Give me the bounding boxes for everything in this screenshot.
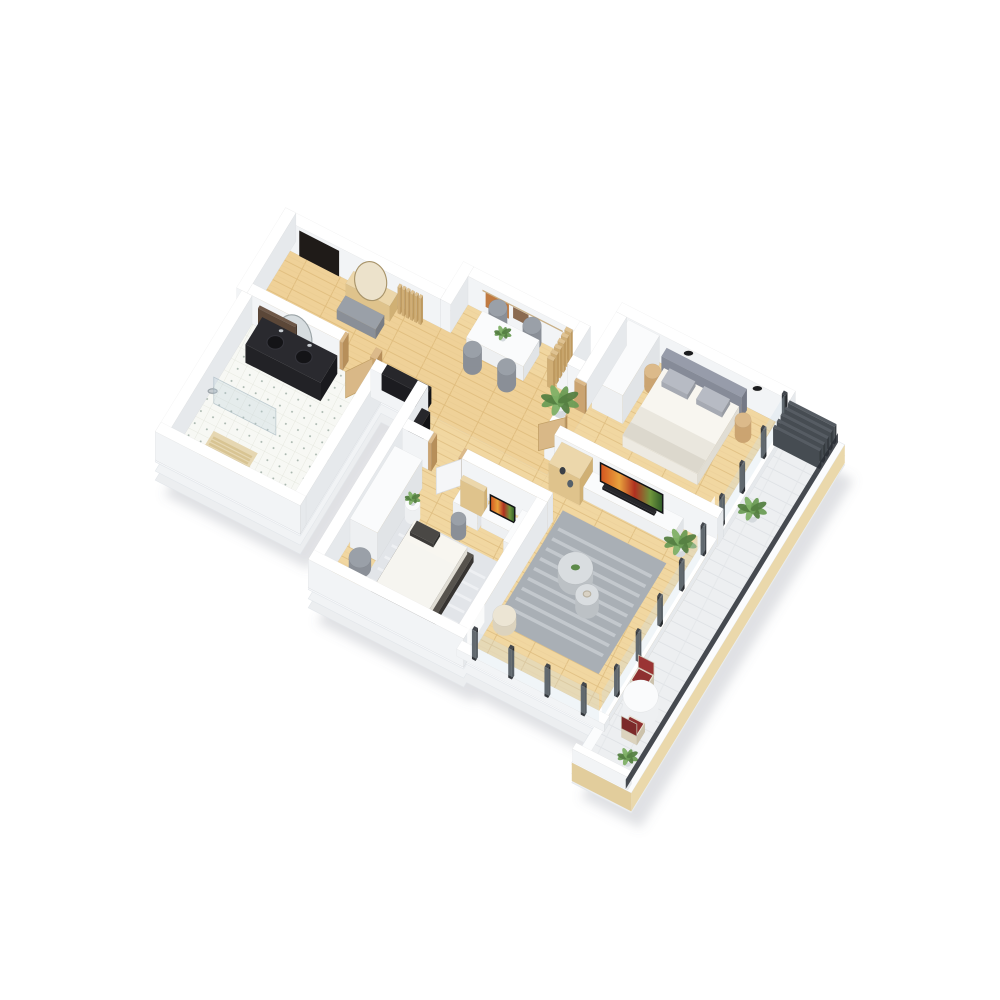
bedroom2-beanbag (349, 547, 371, 568)
entry-slat-panel-5-face (414, 295, 417, 323)
bath-sink-bowl-1 (267, 336, 284, 350)
balcony-round-table (623, 680, 658, 712)
scene-root (155, 208, 854, 829)
slat-divider-5-face (557, 352, 559, 384)
slat-divider-6-face (547, 358, 553, 390)
entry-slat-panel-4-face (410, 293, 413, 321)
master-door-frame-1-face (585, 383, 587, 414)
slat-divider-4-face (560, 347, 562, 379)
master-nightstand-left (644, 364, 660, 379)
entry-slat-panel-1-face (398, 287, 401, 315)
dining-chair-front-2 (497, 358, 516, 375)
bath-door-frame-1-face (340, 341, 343, 370)
dining-chair-back-2 (523, 317, 542, 334)
master-door-frame-1-face (574, 381, 584, 414)
bedroom2-desk-chair (451, 512, 466, 526)
entry-slat-panel-2-face (402, 289, 405, 317)
bookshelf-decor-2 (567, 480, 573, 488)
master-nightstand-right (735, 412, 751, 427)
coffee-table-decor-2 (583, 591, 591, 597)
bath-faucet-2 (307, 344, 312, 347)
bath-sink-bowl-2 (295, 350, 312, 364)
apartment-floorplan-3d (0, 0, 1000, 1000)
coffee-table-decor-1 (571, 564, 580, 570)
wall-nook-left-face (440, 299, 450, 333)
screenshot-canvas (0, 0, 1000, 1000)
entry-slat-panel-6-face (421, 295, 423, 325)
dining-chair-front-1 (463, 341, 482, 358)
entry-slat-panel-3-face (406, 291, 409, 319)
slat-divider-6-face (553, 358, 555, 390)
bath-faucet-1 (279, 329, 284, 332)
living-pouf (493, 605, 517, 627)
dining-chair-back-1 (488, 299, 507, 316)
bookshelf-decor-1 (560, 467, 566, 475)
master-ceiling-spot-2 (752, 385, 763, 391)
slat-divider-3-face (564, 341, 566, 373)
bedroom2-door-frame-1-face (428, 442, 431, 471)
master-ceiling-spot-1 (683, 350, 694, 356)
entry-slat-panel-6-face (418, 297, 421, 325)
